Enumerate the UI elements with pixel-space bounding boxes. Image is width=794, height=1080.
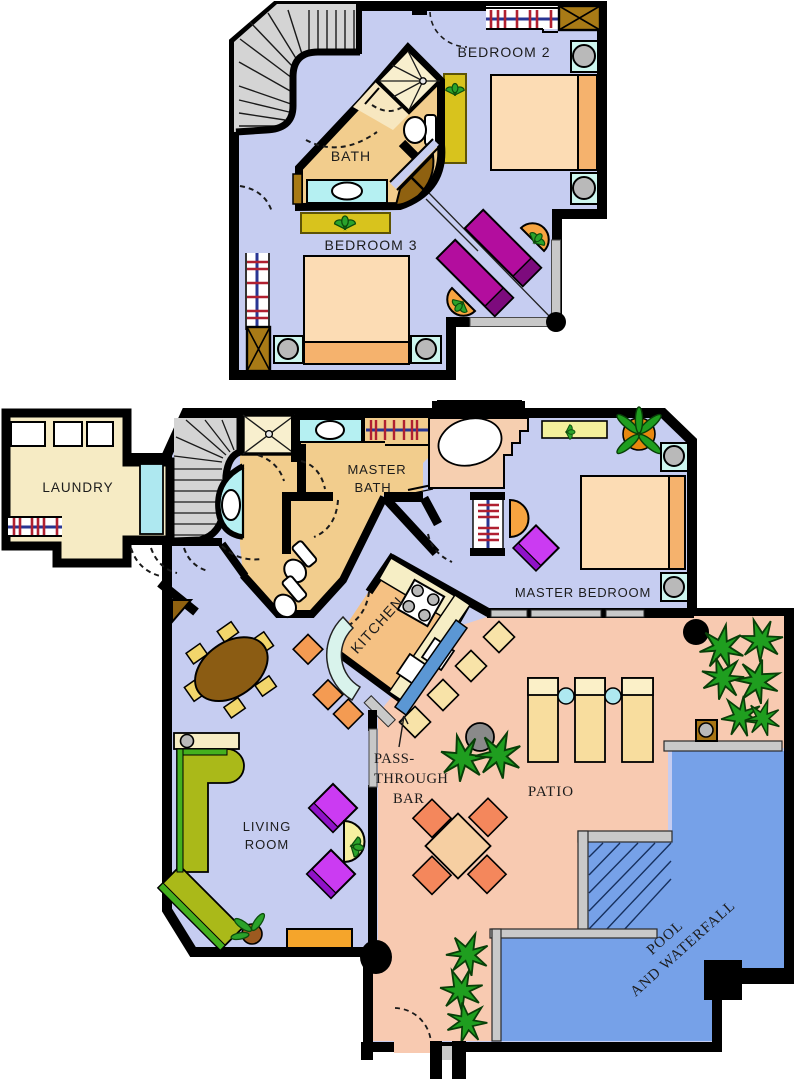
svg-text:BEDROOM 3: BEDROOM 3 — [324, 237, 417, 253]
svg-text:PATIO: PATIO — [528, 784, 574, 800]
svg-text:BATH: BATH — [355, 480, 392, 495]
svg-text:THROUGH: THROUGH — [374, 771, 448, 787]
svg-text:LIVING: LIVING — [243, 819, 292, 834]
svg-text:BATH: BATH — [331, 148, 371, 164]
svg-text:ROOM: ROOM — [245, 837, 289, 852]
svg-text:PASS-: PASS- — [374, 751, 415, 767]
svg-text:BEDROOM 2: BEDROOM 2 — [457, 44, 550, 60]
svg-text:MASTER BEDROOM: MASTER BEDROOM — [515, 585, 651, 600]
svg-text:MASTER: MASTER — [348, 462, 407, 477]
svg-text:BAR: BAR — [393, 791, 424, 807]
svg-text:LAUNDRY: LAUNDRY — [42, 480, 113, 495]
